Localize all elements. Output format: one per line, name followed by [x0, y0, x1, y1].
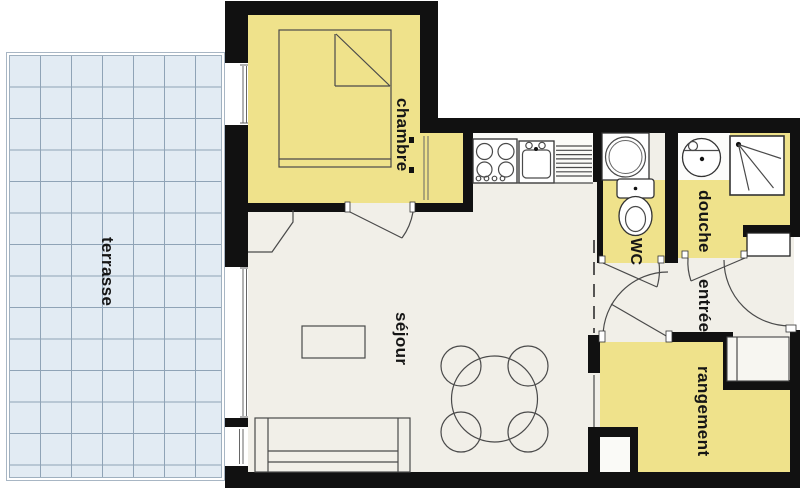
bathroom-sink [683, 139, 721, 177]
label-entree: entrée [696, 279, 713, 332]
entry-closet [727, 337, 789, 381]
front-door-leaf [747, 233, 790, 256]
storage-nook [600, 437, 630, 472]
toilet [617, 179, 654, 236]
washing-machine [602, 133, 649, 180]
label-douche: douche [696, 190, 713, 253]
label-sejour: séjour [393, 312, 410, 365]
stove [473, 139, 517, 183]
label-terrasse: terrasse [99, 237, 116, 306]
bedroom-closet-fill [420, 133, 463, 203]
shower-stall [730, 136, 784, 195]
label-rangement: rangement [695, 366, 712, 457]
floor-plan-svg [0, 0, 800, 489]
kitchen-sink [519, 141, 554, 183]
floor-plan-canvas: terrasse chambre séjour WC douche entrée… [0, 0, 800, 489]
label-wc: WC [627, 238, 643, 265]
label-chambre: chambre [394, 98, 411, 172]
